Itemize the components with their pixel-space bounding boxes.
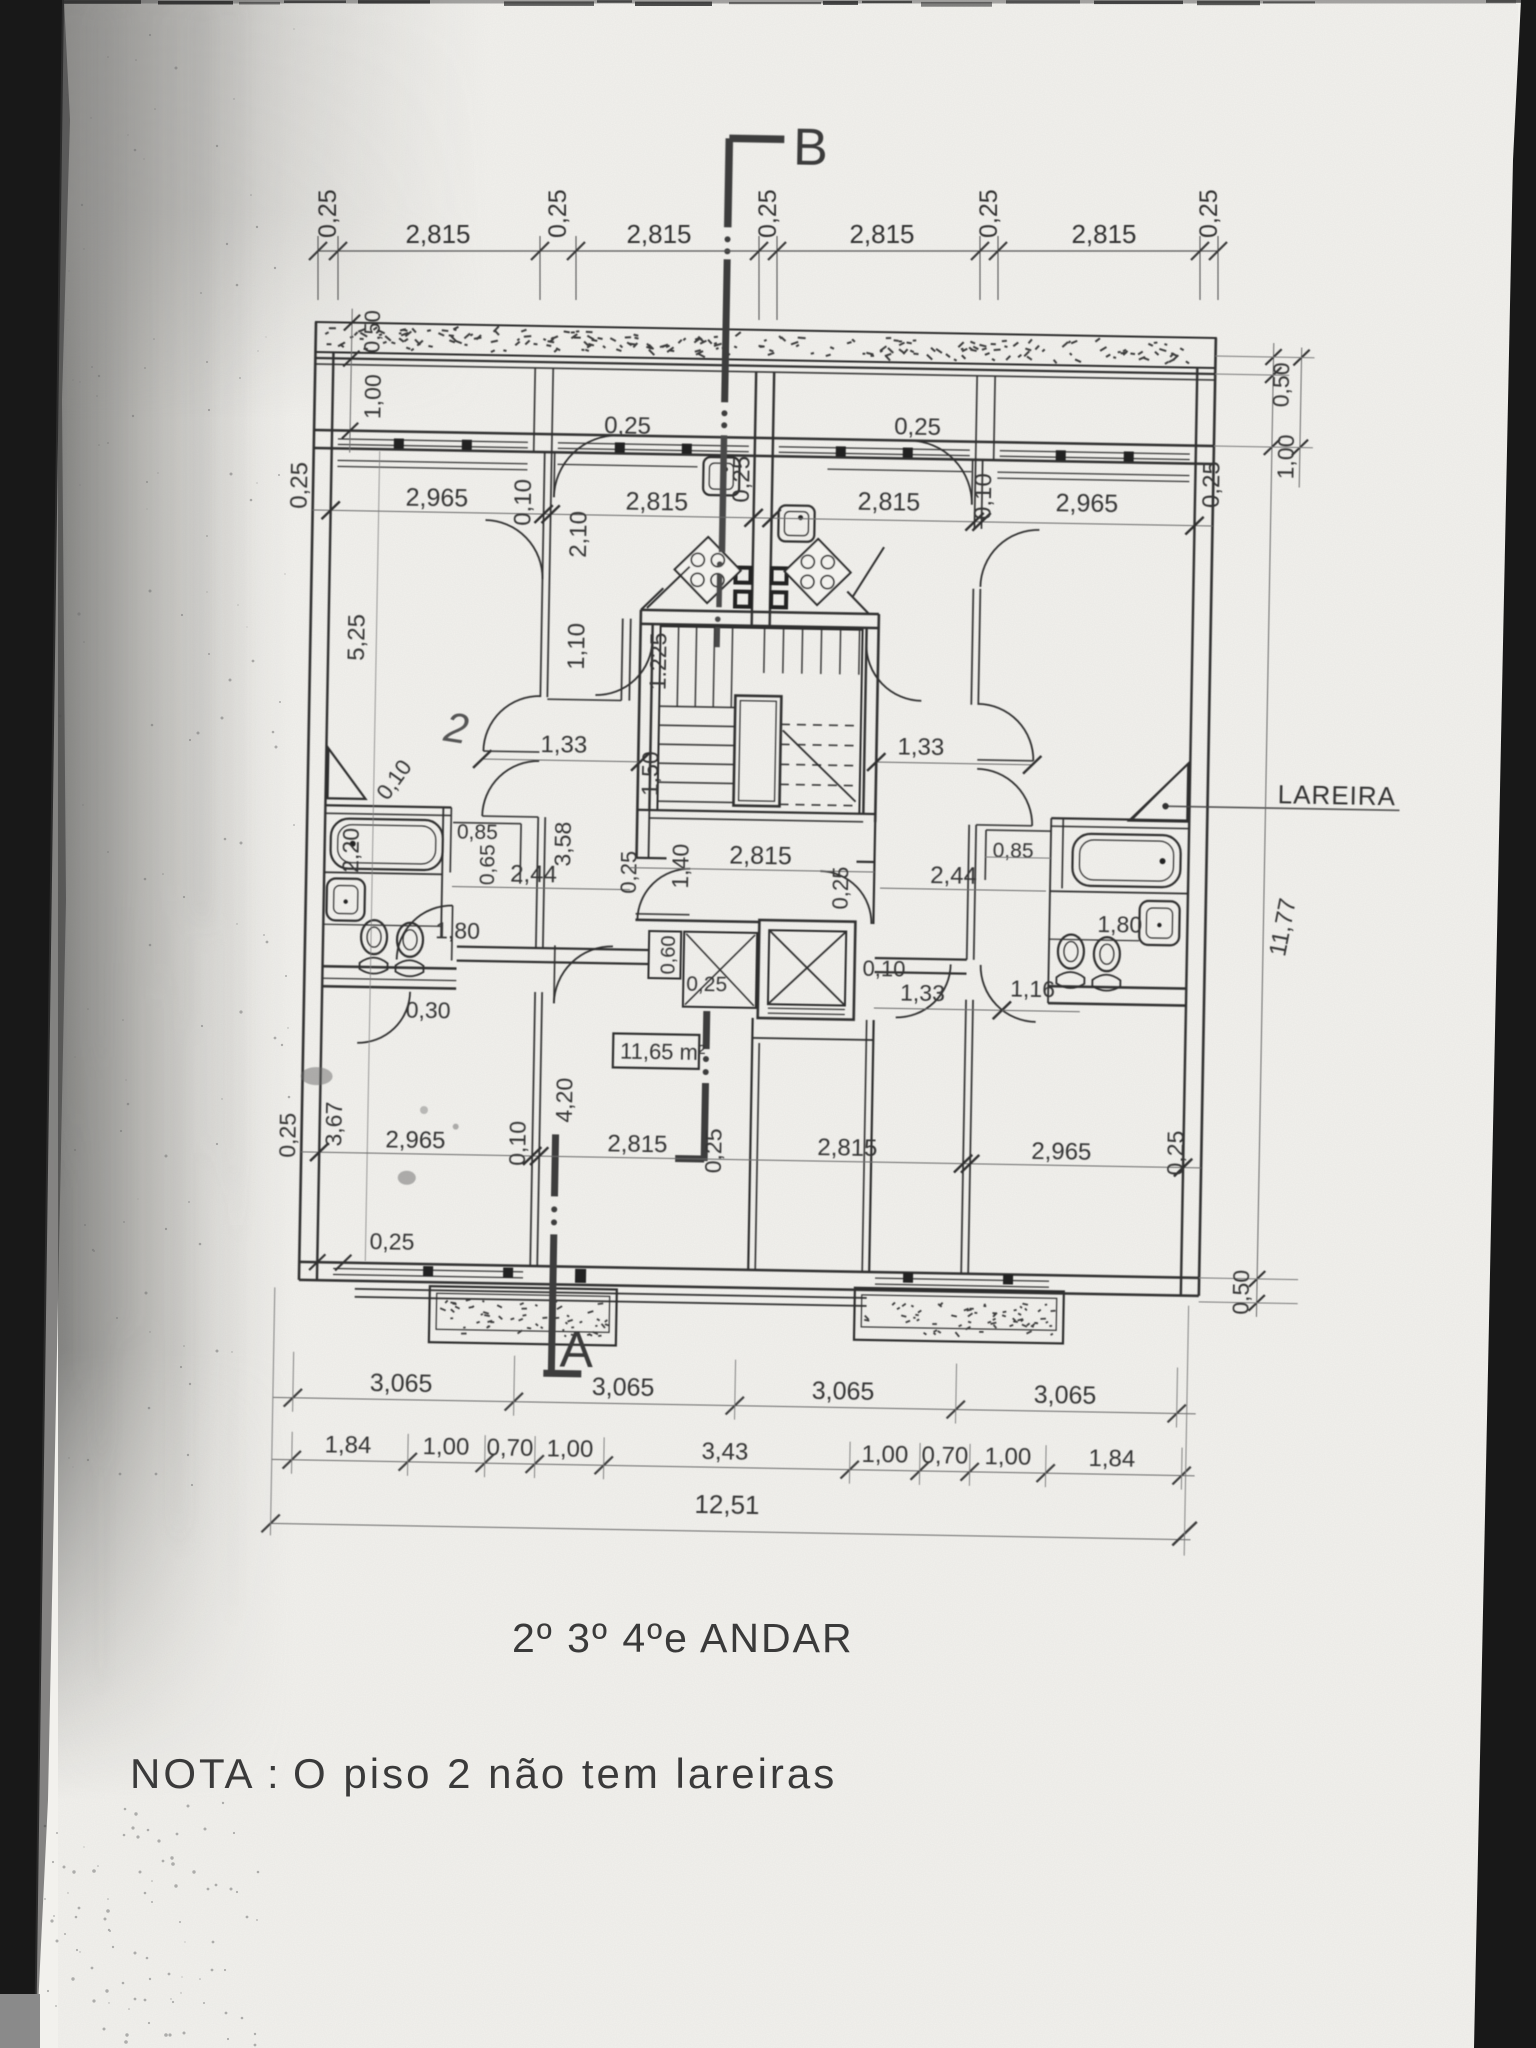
svg-text:1,33: 1,33 bbox=[540, 731, 587, 759]
svg-text:2,815: 2,815 bbox=[626, 219, 691, 249]
svg-text:2,20: 2,20 bbox=[337, 828, 364, 873]
svg-text:0,25: 0,25 bbox=[544, 189, 572, 238]
svg-text:0,25: 0,25 bbox=[616, 851, 642, 894]
svg-text:1,80: 1,80 bbox=[1097, 911, 1142, 938]
svg-text:0,10: 0,10 bbox=[504, 1121, 531, 1166]
svg-text:1,00: 1,00 bbox=[422, 1433, 469, 1461]
svg-text:2,815: 2,815 bbox=[405, 219, 470, 249]
svg-text:2,965: 2,965 bbox=[1031, 1138, 1092, 1166]
svg-text:0,65: 0,65 bbox=[476, 844, 500, 885]
svg-text:2,815: 2,815 bbox=[849, 219, 914, 249]
svg-text:1,00: 1,00 bbox=[861, 1441, 908, 1469]
svg-text:3,43: 3,43 bbox=[701, 1438, 748, 1466]
svg-text:0,25: 0,25 bbox=[274, 1113, 301, 1158]
svg-text:1,00: 1,00 bbox=[546, 1435, 593, 1463]
svg-text:0,25: 0,25 bbox=[975, 189, 1003, 238]
svg-text:1.225: 1.225 bbox=[645, 632, 672, 690]
svg-text:0,25: 0,25 bbox=[286, 462, 314, 509]
svg-text:0,10: 0,10 bbox=[509, 479, 537, 526]
svg-text:0,25: 0,25 bbox=[894, 413, 941, 441]
svg-text:2,44: 2,44 bbox=[510, 861, 557, 889]
svg-text:0,50: 0,50 bbox=[1268, 362, 1295, 407]
svg-text:2,815: 2,815 bbox=[1071, 219, 1136, 249]
svg-text:2,10: 2,10 bbox=[565, 511, 593, 558]
svg-text:2,965: 2,965 bbox=[385, 1126, 446, 1154]
svg-text:1,33: 1,33 bbox=[900, 980, 945, 1007]
svg-text:3,065: 3,065 bbox=[812, 1377, 875, 1406]
svg-text:2,815: 2,815 bbox=[607, 1130, 668, 1158]
svg-text:0,70: 0,70 bbox=[486, 1434, 533, 1462]
svg-text:1,84: 1,84 bbox=[1088, 1445, 1135, 1473]
svg-text:0,50: 0,50 bbox=[359, 310, 385, 353]
svg-text:0,25: 0,25 bbox=[828, 866, 854, 909]
svg-text:0,25: 0,25 bbox=[686, 973, 727, 997]
svg-text:NOTA : O piso 2 não tem l: NOTA : O piso 2 não tem lareiras bbox=[130, 1750, 837, 1797]
svg-text:2,965: 2,965 bbox=[1055, 489, 1118, 518]
svg-text:1,50: 1,50 bbox=[637, 751, 664, 796]
svg-text:0,25: 0,25 bbox=[1198, 461, 1226, 508]
svg-text:1,00: 1,00 bbox=[359, 374, 386, 419]
svg-text:1,16: 1,16 bbox=[1010, 975, 1055, 1002]
svg-text:0,25: 0,25 bbox=[1162, 1130, 1189, 1175]
svg-text:1,33: 1,33 bbox=[897, 733, 944, 761]
svg-text:A: A bbox=[559, 1322, 594, 1379]
svg-text:4,20: 4,20 bbox=[551, 1078, 578, 1123]
svg-text:B: B bbox=[793, 118, 829, 177]
svg-text:12,51: 12,51 bbox=[694, 1489, 760, 1520]
svg-text:3,58: 3,58 bbox=[549, 821, 576, 866]
svg-text:3,065: 3,065 bbox=[1033, 1381, 1096, 1410]
svg-text:2,815: 2,815 bbox=[625, 488, 688, 517]
svg-text:0,30: 0,30 bbox=[406, 997, 451, 1024]
svg-text:1,84: 1,84 bbox=[324, 1431, 371, 1459]
svg-text:0,10: 0,10 bbox=[970, 473, 998, 520]
svg-text:0,85: 0,85 bbox=[457, 821, 498, 845]
svg-text:3,065: 3,065 bbox=[370, 1369, 433, 1398]
svg-text:5,25: 5,25 bbox=[343, 614, 371, 661]
svg-text:11,65 m²: 11,65 m² bbox=[620, 1039, 706, 1066]
svg-text:3,67: 3,67 bbox=[320, 1101, 347, 1146]
svg-text:2,815: 2,815 bbox=[817, 1134, 878, 1162]
svg-text:0,85: 0,85 bbox=[992, 839, 1033, 863]
svg-text:0,25: 0,25 bbox=[700, 1128, 727, 1173]
svg-text:0,60: 0,60 bbox=[657, 935, 680, 974]
svg-text:2,965: 2,965 bbox=[405, 484, 468, 513]
svg-text:0,25: 0,25 bbox=[728, 456, 756, 503]
svg-text:0,25: 0,25 bbox=[754, 189, 782, 238]
svg-text:0,50: 0,50 bbox=[1227, 1270, 1254, 1315]
svg-text:0,25: 0,25 bbox=[369, 1228, 414, 1255]
svg-text:2º 3º 4ºe ANDAR: 2º 3º 4ºe ANDAR bbox=[512, 1615, 854, 1661]
svg-text:2,815: 2,815 bbox=[857, 488, 920, 517]
svg-text:0,70: 0,70 bbox=[921, 1442, 968, 1470]
svg-text:0,25: 0,25 bbox=[604, 412, 651, 440]
svg-text:1,00: 1,00 bbox=[984, 1443, 1031, 1471]
svg-text:1,80: 1,80 bbox=[435, 917, 480, 944]
svg-text:0,25: 0,25 bbox=[1195, 189, 1223, 238]
svg-text:0,10: 0,10 bbox=[862, 956, 905, 982]
svg-text:1,40: 1,40 bbox=[667, 844, 694, 889]
svg-text:0,25: 0,25 bbox=[314, 189, 342, 238]
svg-text:LAREIRA: LAREIRA bbox=[1277, 779, 1396, 811]
svg-text:1,00: 1,00 bbox=[1272, 434, 1299, 479]
svg-text:3,065: 3,065 bbox=[592, 1373, 655, 1402]
svg-text:1,10: 1,10 bbox=[563, 623, 591, 670]
svg-text:2,815: 2,815 bbox=[729, 841, 792, 870]
svg-text:2,44: 2,44 bbox=[930, 862, 977, 890]
